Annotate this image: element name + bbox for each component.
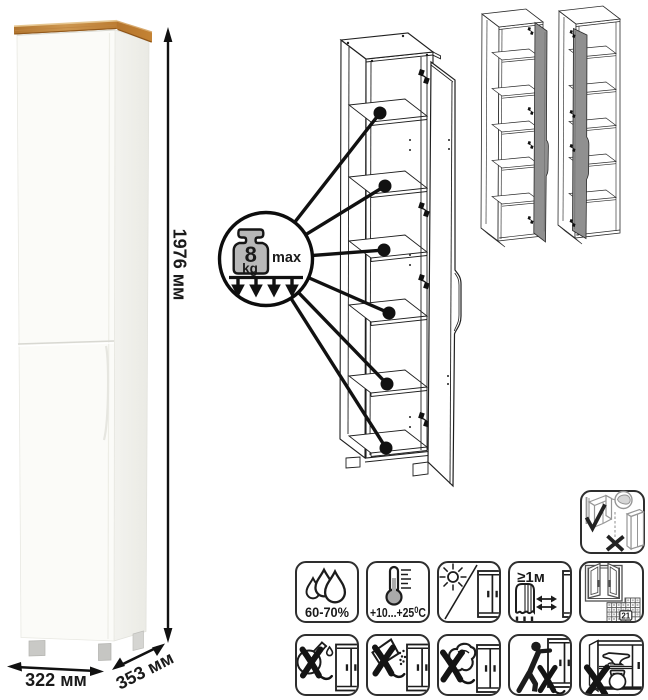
svg-text:kg: kg [242, 261, 258, 276]
svg-text:max: max [272, 250, 301, 266]
svg-text:+10...+250С: +10...+250С [370, 605, 426, 620]
svg-text:322 мм: 322 мм [25, 670, 87, 690]
svg-text:21: 21 [621, 612, 630, 621]
svg-text:1976 мм: 1976 мм [170, 229, 190, 301]
svg-text:60-70%: 60-70% [305, 605, 349, 620]
